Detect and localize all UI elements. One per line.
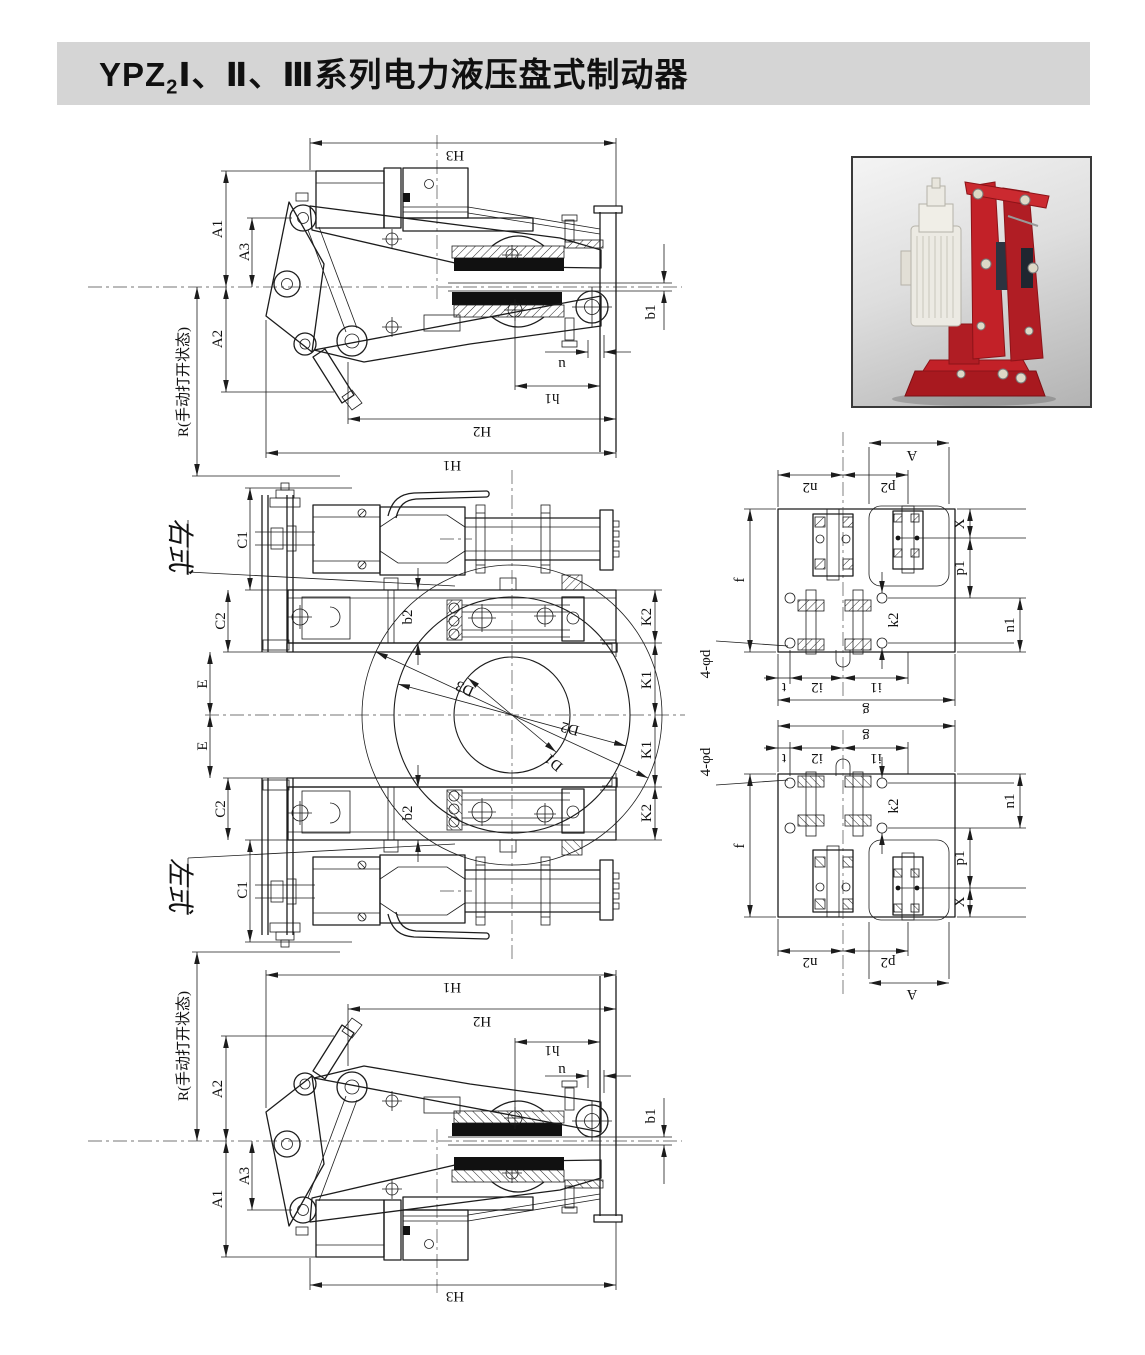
dim-h1-top: h1 — [545, 390, 560, 406]
dim-p2-lower: p2 — [881, 954, 896, 970]
dim-A2-bottom: A2 — [210, 1080, 226, 1098]
dim-i1-upper: i1 — [870, 679, 882, 695]
dim-t-upper: t — [781, 679, 786, 695]
dim-H1-top: H1 — [443, 457, 461, 473]
dim-f-lower: f — [732, 844, 748, 849]
dim-E-upper: E — [195, 679, 211, 688]
dim-k2-upper: k2 — [886, 613, 902, 628]
dim-n2-lower: n2 — [803, 954, 818, 970]
dim-K2-upper: K2 — [639, 608, 655, 626]
dim-A-upper: A — [906, 447, 917, 463]
label-left-type: 左式 — [165, 858, 195, 915]
dim-h1-bottom: h1 — [545, 1042, 560, 1058]
dim-f-upper: f — [732, 578, 748, 583]
dim-g-upper: g — [862, 702, 870, 718]
dim-E-lower: E — [195, 741, 211, 750]
dim-K2-lower: K2 — [639, 804, 655, 822]
dim-t-lower: t — [781, 750, 786, 766]
dim-A-lower: A — [906, 986, 917, 1002]
dim-i1-lower: i1 — [870, 750, 882, 766]
dim-i2-upper: i2 — [811, 679, 823, 695]
plan-view-lineart — [188, 483, 662, 715]
dim-A3-top: A3 — [237, 243, 253, 261]
dim-b2-lower: b2 — [400, 806, 416, 821]
dim-holes-lower: 4-φd — [698, 747, 714, 776]
label-right-type: 右式 — [165, 518, 195, 575]
dim-A1-bottom: A1 — [210, 1190, 226, 1208]
dim-A2-top: A2 — [210, 330, 226, 348]
dim-C2-upper: C2 — [213, 612, 229, 630]
dim-g-lower: g — [862, 728, 870, 744]
dim-k2-lower: k2 — [886, 799, 902, 814]
dim-X-upper: X — [952, 518, 968, 529]
dim-C2-lower: C2 — [213, 800, 229, 818]
dim-R-manual-open-top: R(手动打开状态) — [175, 327, 192, 437]
dim-R-manual-open-bottom: R(手动打开状态) — [175, 991, 192, 1101]
dim-H2-bottom: H2 — [473, 1013, 491, 1029]
base-plate-lineart — [716, 432, 1026, 706]
dim-K1-lower: K1 — [639, 741, 655, 759]
dim-H3-bottom: H3 — [446, 1288, 464, 1304]
dim-X-lower: X — [952, 896, 968, 907]
dim-b2-upper: b2 — [400, 610, 416, 625]
dim-A1-top: A1 — [210, 220, 226, 238]
dim-holes-upper: 4-φd — [698, 649, 714, 678]
dim-u-bottom: u — [558, 1062, 566, 1078]
dim-n1-lower: n1 — [1002, 794, 1018, 809]
catalog-page: { "title": { "prefix": "YPZ", "subscript… — [0, 0, 1145, 1355]
dim-H3-top: H3 — [446, 147, 464, 163]
dim-H1-bottom: H1 — [443, 979, 461, 995]
dim-b1-bottom: b1 — [643, 1109, 659, 1124]
dim-i2-lower: i2 — [811, 750, 823, 766]
dim-p1-upper: p1 — [952, 561, 968, 576]
dim-D1: D1 — [542, 750, 566, 774]
dim-n2-upper: n2 — [803, 479, 818, 495]
dim-b1-top: b1 — [643, 305, 659, 320]
dim-p1-lower: p1 — [952, 851, 968, 866]
dim-A3-bottom: A3 — [237, 1167, 253, 1185]
brake-dimension-drawing: H3 A1 A3 A2 R(手动打开状态) b1 u h1 H2 H1 H1 H… — [0, 0, 1145, 1355]
plan-view-bottom-mirror — [188, 715, 662, 947]
dim-u-top: u — [558, 356, 566, 372]
dim-K1-upper: K1 — [639, 671, 655, 689]
dim-C1-upper: C1 — [235, 531, 251, 549]
dim-p2-upper: p2 — [881, 479, 896, 495]
dim-C1-lower: C1 — [235, 881, 251, 899]
dim-D2: D2 — [559, 718, 581, 738]
dim-H2-top: H2 — [473, 423, 491, 439]
dim-n1-upper: n1 — [1002, 618, 1018, 633]
